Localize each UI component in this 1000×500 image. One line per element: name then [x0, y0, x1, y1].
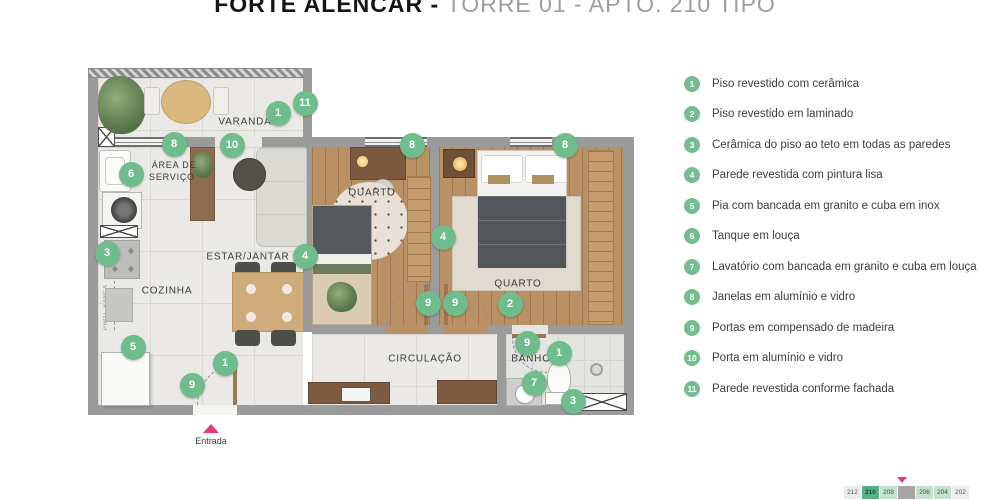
legend-item-label: Cerâmica do piso ao teto em todas as par… — [712, 139, 950, 151]
legend-item-label: Parede revestida conforme fachada — [712, 383, 894, 395]
legend-number-badge: 6 — [684, 228, 700, 244]
plan-marker-1: 1 — [213, 351, 238, 376]
legend-item-6: 6Tanque em louça — [684, 228, 800, 245]
legend-item-5: 5Pia com bancada em granito e cuba em in… — [684, 197, 940, 214]
plan-marker-2: 2 — [498, 292, 523, 317]
plan-marker-5: 5 — [121, 335, 146, 360]
legend-item-label: Piso revestido em laminado — [712, 108, 853, 120]
legend-item-9: 9Portas em compensado de madeira — [684, 319, 894, 336]
legend-item-label: Piso revestido com cerâmica — [712, 78, 859, 90]
legend-item-3: 3Cerâmica do piso ao teto em todas as pa… — [684, 136, 950, 153]
legend-number-badge: 1 — [684, 76, 700, 92]
unit-cell-210[interactable]: 210 — [862, 486, 879, 499]
unit-cell-206[interactable]: 206 — [916, 486, 933, 499]
plan-marker-8: 8 — [553, 133, 578, 158]
legend-number-badge: 4 — [684, 167, 700, 183]
legend-number-badge: 3 — [684, 137, 700, 153]
legend-item-10: 10Porta em alumínio e vidro — [684, 350, 843, 367]
legend-item-label: Portas em compensado de madeira — [712, 322, 894, 334]
unit-cell-204[interactable]: 204 — [934, 486, 951, 499]
plan-marker-8: 8 — [400, 133, 425, 158]
plan-marker-9: 9 — [416, 291, 441, 316]
plan-marker-1: 1 — [547, 341, 572, 366]
legend-number-badge: 8 — [684, 289, 700, 305]
legend-number-badge: 11 — [684, 381, 700, 397]
title-project: FORTE ALENCAR - — [214, 0, 446, 17]
unit-cell-212[interactable]: 212 — [844, 486, 861, 499]
legend-item-label: Janelas em alumínio e vidro — [712, 291, 855, 303]
plan-marker-1: 1 — [266, 101, 291, 126]
legend-item-4: 4Parede revestida com pintura lisa — [684, 167, 883, 184]
plan-markers: 1111088863445199929173 — [85, 62, 641, 422]
legend-item-label: Tanque em louça — [712, 230, 800, 242]
legend-item-label: Pia com bancada em granito e cuba em ino… — [712, 200, 940, 212]
entrance-label: Entrada — [181, 436, 241, 446]
legend-item-1: 1Piso revestido com cerâmica — [684, 75, 859, 92]
legend-item-8: 8Janelas em alumínio e vidro — [684, 289, 855, 306]
legend-item-label: Porta em alumínio e vidro — [712, 352, 843, 364]
unit-strip: 212210208206204202 — [844, 486, 969, 499]
title-unit: TORRE 01 - APTO. 210 TIPO — [447, 0, 776, 17]
legend-item-label: Parede revestida com pintura lisa — [712, 169, 883, 181]
plan-marker-3: 3 — [95, 241, 120, 266]
plan-marker-7: 7 — [522, 371, 547, 396]
plan-marker-9: 9 — [180, 373, 205, 398]
legend-number-badge: 2 — [684, 106, 700, 122]
legend-number-badge: 9 — [684, 320, 700, 336]
entrance-arrow-icon — [203, 424, 219, 433]
unit-cell-202[interactable]: 202 — [952, 486, 969, 499]
plan-marker-9: 9 — [515, 331, 540, 356]
plan-marker-3: 3 — [561, 389, 586, 414]
unit-strip-pointer-icon — [897, 477, 907, 483]
legend-item-label: Lavatório com bancada em granito e cuba … — [712, 261, 977, 273]
page-title: FORTE ALENCAR - TORRE 01 - APTO. 210 TIP… — [0, 0, 990, 18]
legend: 1Piso revestido com cerâmica2Piso revest… — [684, 70, 984, 410]
legend-item-7: 7Lavatório com bancada em granito e cuba… — [684, 258, 977, 275]
legend-item-2: 2Piso revestido em laminado — [684, 106, 853, 123]
plan-marker-9: 9 — [443, 291, 468, 316]
plan-marker-6: 6 — [119, 162, 144, 187]
plan-marker-4: 4 — [431, 225, 456, 250]
unit-cell-core — [898, 486, 915, 499]
plan-marker-4: 4 — [293, 244, 318, 269]
plan-marker-8: 8 — [162, 132, 187, 157]
legend-number-badge: 5 — [684, 198, 700, 214]
legend-number-badge: 7 — [684, 259, 700, 275]
legend-item-11: 11Parede revestida conforme fachada — [684, 380, 894, 397]
floor-plan: PROJ. SANCA PROJ. EXAUSTÃO BANHO — [85, 62, 641, 422]
plan-marker-11: 11 — [293, 91, 318, 116]
plan-marker-10: 10 — [220, 133, 245, 158]
legend-number-badge: 10 — [684, 350, 700, 366]
unit-cell-208[interactable]: 208 — [880, 486, 897, 499]
